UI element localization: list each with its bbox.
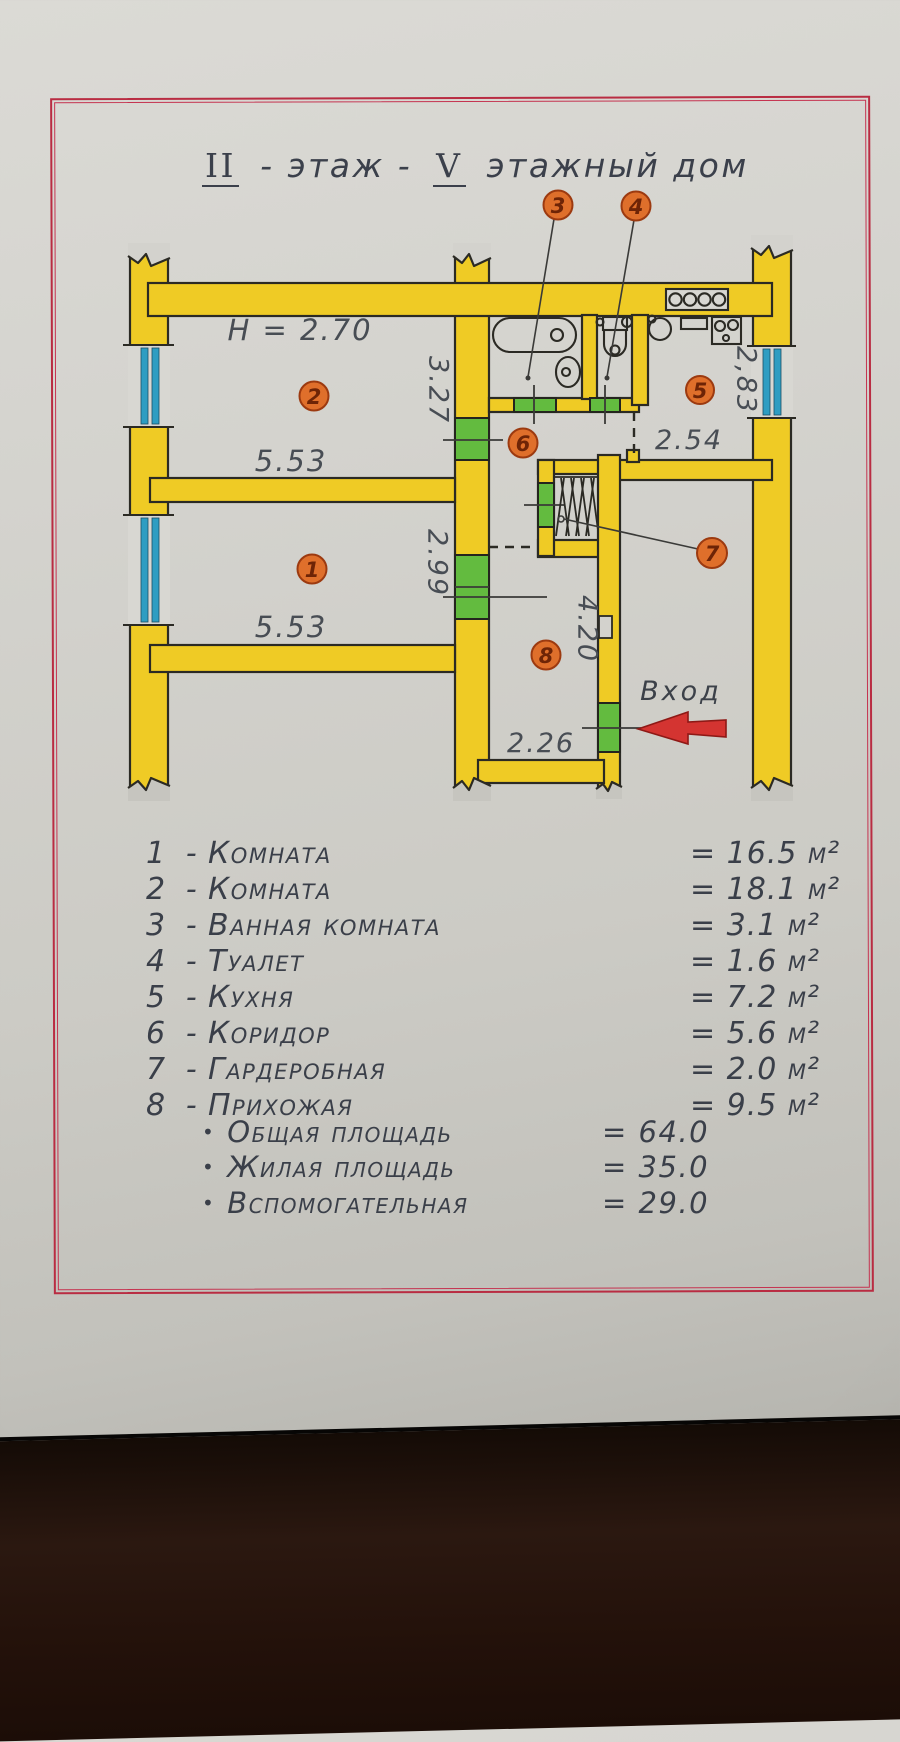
total-label: Общая площадь <box>227 1115 452 1149</box>
kitchen-sink <box>649 316 672 341</box>
legend-room-name: Ванная комната <box>208 908 441 943</box>
dim-kitchen-depth: 2,83 <box>731 346 762 414</box>
legend-row-3: 3 - Ванная комната = 3.1 м² <box>146 908 846 944</box>
window-room2 <box>123 345 174 427</box>
floor-plan-drawing: Вход 1 2 3 4 5 6 7 <box>0 0 900 830</box>
badge-room-6: 6 <box>509 429 538 458</box>
dim-kitchen-width: 2.54 <box>655 425 723 456</box>
wall-right-exterior <box>753 244 791 792</box>
legend-row-7: 7 - Гардеробная = 2.0 м² <box>146 1051 846 1087</box>
legend-room-area: = 16.5 м² <box>690 836 840 871</box>
legend-dash: - <box>176 1052 208 1087</box>
legend-dash: - <box>176 944 208 979</box>
wall-toilet-kitchen <box>632 315 648 405</box>
svg-text:7: 7 <box>705 542 720 566</box>
dim-room2-width: 5.53 <box>255 444 328 478</box>
legend-dash: - <box>176 980 208 1015</box>
bullet-icon: • <box>202 1120 215 1144</box>
legend-room-area: = 5.6 м² <box>690 1016 820 1051</box>
dim-hall-depth: 4.20 <box>572 595 603 663</box>
total-label: Вспомогательная <box>227 1186 468 1220</box>
badge-room-7: 7 <box>697 538 727 568</box>
svg-text:5: 5 <box>693 379 708 403</box>
legend-num: 6 <box>146 1016 176 1051</box>
legend-room-name: Кухня <box>208 980 294 1015</box>
closet-hangers <box>554 477 598 536</box>
legend-num: 5 <box>146 980 176 1015</box>
total-label: Жилая площадь <box>227 1150 455 1184</box>
total-value: = 64.0 <box>602 1115 709 1149</box>
dim-room1-width: 5.53 <box>255 610 328 644</box>
wall-hall-bottom <box>478 760 604 783</box>
total-row-obshchaya: • Общая площадь = 64.0 <box>146 1114 846 1150</box>
wall-bath-toilet-divider <box>582 315 597 399</box>
wall-room2-room1 <box>150 478 455 502</box>
legend-row-2: 2 - Комната = 18.1 м² <box>146 872 846 908</box>
ceiling-height-label: H = 2.70 <box>227 313 372 347</box>
legend-dash: - <box>176 1016 208 1051</box>
total-row-zhilaya: • Жилая площадь = 35.0 <box>146 1150 846 1186</box>
badge-room-2: 2 <box>300 382 329 411</box>
bullet-icon: • <box>202 1191 215 1215</box>
legend-row-5: 5 - Кухня = 7.2 м² <box>146 980 846 1016</box>
table-surface <box>0 1414 900 1742</box>
entrance-arrow <box>638 712 726 744</box>
legend-room-area: = 18.1 м² <box>690 872 840 907</box>
kitchen-counter <box>681 318 707 329</box>
entrance-label: Вход <box>640 676 722 707</box>
svg-text:4: 4 <box>628 195 644 219</box>
door-room2 <box>455 418 489 460</box>
badge-room-5: 5 <box>686 376 714 404</box>
kitchen-stove <box>712 317 741 344</box>
legend-room-area: = 2.0 м² <box>690 1052 820 1087</box>
dim-hall-width: 2.26 <box>507 728 575 759</box>
legend-row-6: 6 - Коридор = 5.6 м² <box>146 1015 846 1051</box>
legend-room-name: Гардеробная <box>208 1052 386 1087</box>
legend-num: 1 <box>146 836 176 871</box>
legend-dash: - <box>176 872 208 907</box>
legend-row-4: 4 - Туалет = 1.6 м² <box>146 944 846 980</box>
badge-room-8: 8 <box>532 641 561 670</box>
bullet-icon: • <box>202 1155 215 1179</box>
door-bathroom <box>514 398 556 412</box>
svg-text:1: 1 <box>305 558 320 582</box>
room-legend: 1 - Комната = 16.5 м² 2 - Комната = 18.1… <box>146 836 846 1123</box>
vent-block <box>666 289 728 310</box>
legend-num: 2 <box>146 872 176 907</box>
window-room1 <box>123 515 174 625</box>
legend-room-area: = 1.6 м² <box>690 944 820 979</box>
badge-room-4: 4 <box>622 192 651 221</box>
legend-dash: - <box>176 908 208 943</box>
legend-room-area: = 3.1 м² <box>690 908 820 943</box>
total-row-vspomogatelnaya: • Вспомогательная = 29.0 <box>146 1185 846 1221</box>
dim-room2-depth: 3.27 <box>423 356 454 424</box>
legend-room-name: Комната <box>208 872 332 907</box>
area-totals: • Общая площадь = 64.0 • Жилая площадь =… <box>146 1114 846 1221</box>
legend-room-name: Коридор <box>208 1016 330 1051</box>
wall-middle <box>455 252 489 792</box>
svg-text:8: 8 <box>539 644 554 668</box>
total-value: = 29.0 <box>602 1186 709 1220</box>
wall-room1-bottom <box>150 645 455 672</box>
svg-text:6: 6 <box>516 432 531 456</box>
svg-text:3: 3 <box>551 194 566 218</box>
legend-row-1: 1 - Комната = 16.5 м² <box>146 836 846 872</box>
legend-room-name: Туалет <box>208 944 304 979</box>
svg-text:2: 2 <box>307 385 322 409</box>
total-value: = 35.0 <box>602 1150 709 1184</box>
legend-room-name: Комната <box>208 836 332 871</box>
bathroom-sink <box>556 357 580 387</box>
legend-num: 7 <box>146 1052 176 1087</box>
dim-room1-depth: 2.99 <box>422 529 453 597</box>
badge-room-3: 3 <box>544 191 573 220</box>
legend-num: 3 <box>146 908 176 943</box>
legend-num: 4 <box>146 944 176 979</box>
legend-room-area: = 7.2 м² <box>690 980 820 1015</box>
legend-dash: - <box>176 836 208 871</box>
badge-room-1: 1 <box>298 555 327 584</box>
